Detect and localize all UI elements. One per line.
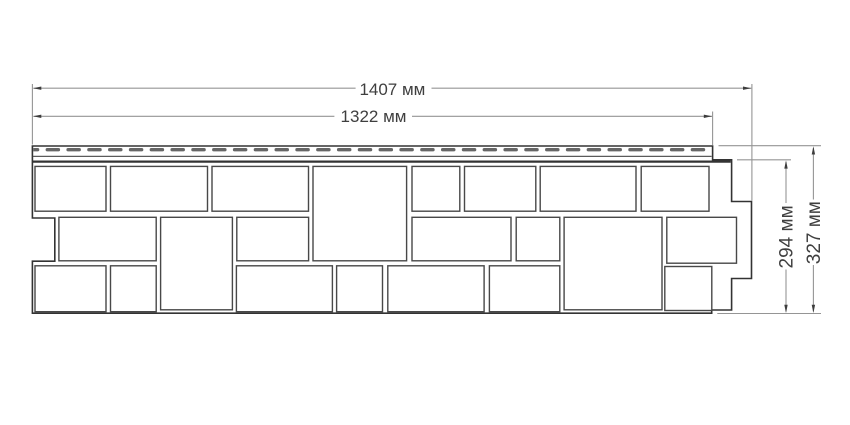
svg-text:1407 мм: 1407 мм xyxy=(359,80,425,99)
svg-text:1322 мм: 1322 мм xyxy=(341,107,407,126)
svg-text:294 мм: 294 мм xyxy=(777,205,798,268)
svg-text:327 мм: 327 мм xyxy=(804,201,825,264)
